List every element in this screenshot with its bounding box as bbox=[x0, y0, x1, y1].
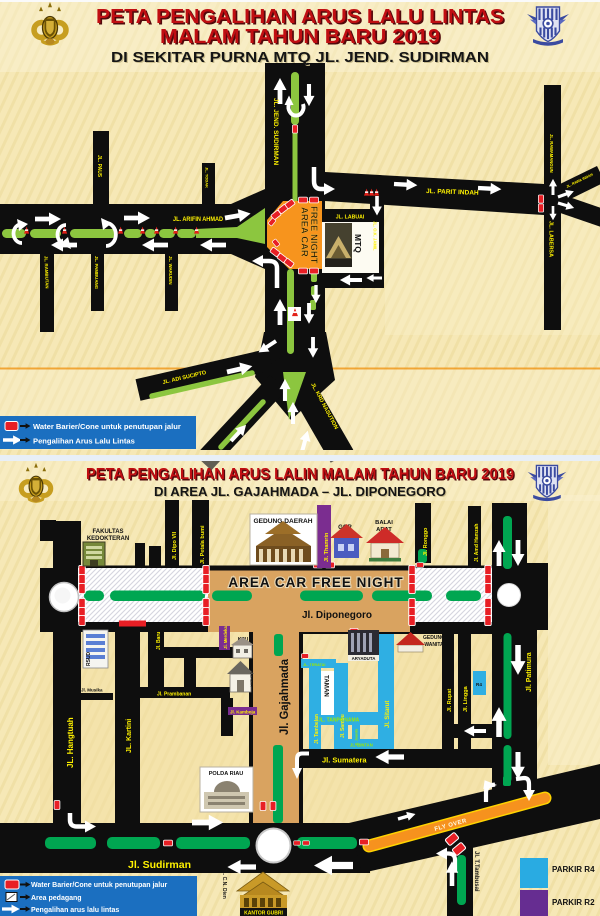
svg-text:POLDA RIAU: POLDA RIAU bbox=[209, 771, 244, 777]
svg-text:JL. LABERSA: JL. LABERSA bbox=[548, 221, 554, 257]
svg-text:Pengalihan arus lalu lintas: Pengalihan arus lalu lintas bbox=[31, 907, 119, 914]
svg-text:Water Barier/Cone untuk penutu: Water Barier/Cone untuk penutupan jalur bbox=[31, 882, 168, 889]
svg-text:JL. Hangtuah: JL. Hangtuah bbox=[66, 717, 75, 768]
svg-text:Jl. Sumatera: Jl. Sumatera bbox=[322, 756, 367, 765]
svg-text:Jl. Petala bumi: Jl. Petala bumi bbox=[200, 525, 206, 564]
svg-text:Jl. Merdeka: Jl. Merdeka bbox=[223, 626, 228, 649]
svg-text:JL. BINTAN: JL. BINTAN bbox=[350, 743, 373, 748]
svg-text:Water Barier/Cone untuk penutu: Water Barier/Cone untuk penutupan jalur bbox=[33, 422, 181, 431]
svg-text:PARKIR R2: PARKIR R2 bbox=[552, 898, 595, 907]
svg-text:JL. Kartini: JL. Kartini bbox=[126, 719, 133, 753]
svg-text:Jl. Patimura: Jl. Patimura bbox=[526, 652, 533, 692]
svg-text:Area pedagang: Area pedagang bbox=[31, 895, 82, 902]
svg-text:Jl. Prambanan: Jl. Prambanan bbox=[157, 692, 191, 698]
svg-text:Jl. Baru: Jl. Baru bbox=[156, 632, 162, 650]
svg-text:JL. C.N. Dien: JL. C.N. Dien bbox=[221, 868, 227, 899]
svg-text:ARYADUTA: ARYADUTA bbox=[352, 656, 377, 661]
svg-text:MTQ: MTQ bbox=[353, 234, 363, 253]
svg-text:JL. WARUDIN: JL. WARUDIN bbox=[168, 256, 173, 285]
svg-text:RSUD: RSUD bbox=[86, 651, 92, 666]
svg-text:GEDUNG: GEDUNG bbox=[423, 635, 445, 641]
svg-text:JL. PAMBUANG: JL. PAMBUANG bbox=[94, 256, 99, 290]
svg-text:FAKULTAS: FAKULTAS bbox=[92, 529, 123, 535]
svg-text:GEREJA: GEREJA bbox=[250, 672, 254, 687]
svg-text:JL. TERATAI: JL. TERATAI bbox=[303, 663, 325, 667]
svg-text:Pengalihan Arus Lalu Lintas: Pengalihan Arus Lalu Lintas bbox=[33, 437, 135, 446]
svg-text:JL. O.K. JAMIL: JL. O.K. JAMIL bbox=[373, 221, 378, 251]
svg-text:Jl. Thamrin: Jl. Thamrin bbox=[324, 532, 330, 562]
svg-text:Jl. Ronggo: Jl. Ronggo bbox=[423, 527, 429, 556]
svg-text:Jl. Rupat: Jl. Rupat bbox=[447, 689, 453, 712]
svg-text:Jl. Sudirman: Jl. Sudirman bbox=[128, 859, 191, 871]
svg-text:JL. ARIFIN AHMAD: JL. ARIFIN AHMAD bbox=[173, 216, 223, 223]
svg-text:Jl. Kamboja: Jl. Kamboja bbox=[230, 710, 256, 715]
svg-text:Jl. Musika: Jl. Musika bbox=[81, 688, 103, 693]
svg-text:PARKIR R4: PARKIR R4 bbox=[552, 865, 595, 874]
svg-text:R4: R4 bbox=[476, 682, 482, 687]
svg-text:PETA PENGALIHAN ARUS LALIN MAL: PETA PENGALIHAN ARUS LALIN MALAM TAHUN B… bbox=[86, 466, 514, 483]
svg-text:Jl. Dipo VII: Jl. Dipo VII bbox=[172, 531, 178, 560]
svg-text:KEDOKTERAN: KEDOKTERAN bbox=[87, 536, 129, 542]
svg-text:JL. RAWAMANGUN: JL. RAWAMANGUN bbox=[549, 134, 554, 173]
svg-text:DI AREA JL. GAJAHMADA – JL. DI: DI AREA JL. GAJAHMADA – JL. DIPONEGORO bbox=[154, 484, 446, 499]
svg-text:Jl. Gajahmada: Jl. Gajahmada bbox=[279, 658, 291, 735]
svg-text:JL. LABUAI: JL. LABUAI bbox=[336, 215, 365, 221]
svg-text:Jl. Sitarut: Jl. Sitarut bbox=[385, 701, 391, 728]
svg-text:DI SEKITAR PURNA MTQ JL. JEND.: DI SEKITAR PURNA MTQ JL. JEND. SUDIRMAN bbox=[111, 49, 489, 66]
svg-text:MALAM TAHUN BARU 2019: MALAM TAHUN BARU 2019 bbox=[160, 25, 440, 48]
svg-text:AREA CAR FREE NIGHT: AREA CAR FREE NIGHT bbox=[228, 575, 403, 590]
svg-text:KANTOR GUBRI: KANTOR GUBRI bbox=[244, 911, 283, 916]
svg-text:JL. TANPA NAMA: JL. TANPA NAMA bbox=[318, 718, 360, 724]
svg-text:JL. PAUS: JL. PAUS bbox=[96, 155, 102, 178]
svg-text:FREE NIGHT: FREE NIGHT bbox=[308, 206, 319, 264]
svg-text:Jl. Diponegoro: Jl. Diponegoro bbox=[302, 610, 372, 621]
svg-text:Jl. T.Tambusai: Jl. T.Tambusai bbox=[473, 851, 479, 892]
svg-text:AREA CAR: AREA CAR bbox=[299, 207, 310, 257]
svg-text:JL. TODAK: JL. TODAK bbox=[205, 167, 210, 188]
svg-text:JL. JEND. SUDIRMAN: JL. JEND. SUDIRMAN bbox=[272, 98, 279, 165]
svg-text:Jl. Amd Hamzah: Jl. Amd Hamzah bbox=[474, 524, 480, 562]
svg-text:Jl. Lingga: Jl. Lingga bbox=[463, 685, 469, 712]
svg-text:Jl. Juanda: Jl. Juanda bbox=[355, 729, 359, 746]
svg-text:TAMAN: TAMAN bbox=[323, 675, 330, 697]
svg-text:BALAI: BALAI bbox=[375, 520, 393, 526]
svg-text:WANITA: WANITA bbox=[424, 642, 444, 648]
